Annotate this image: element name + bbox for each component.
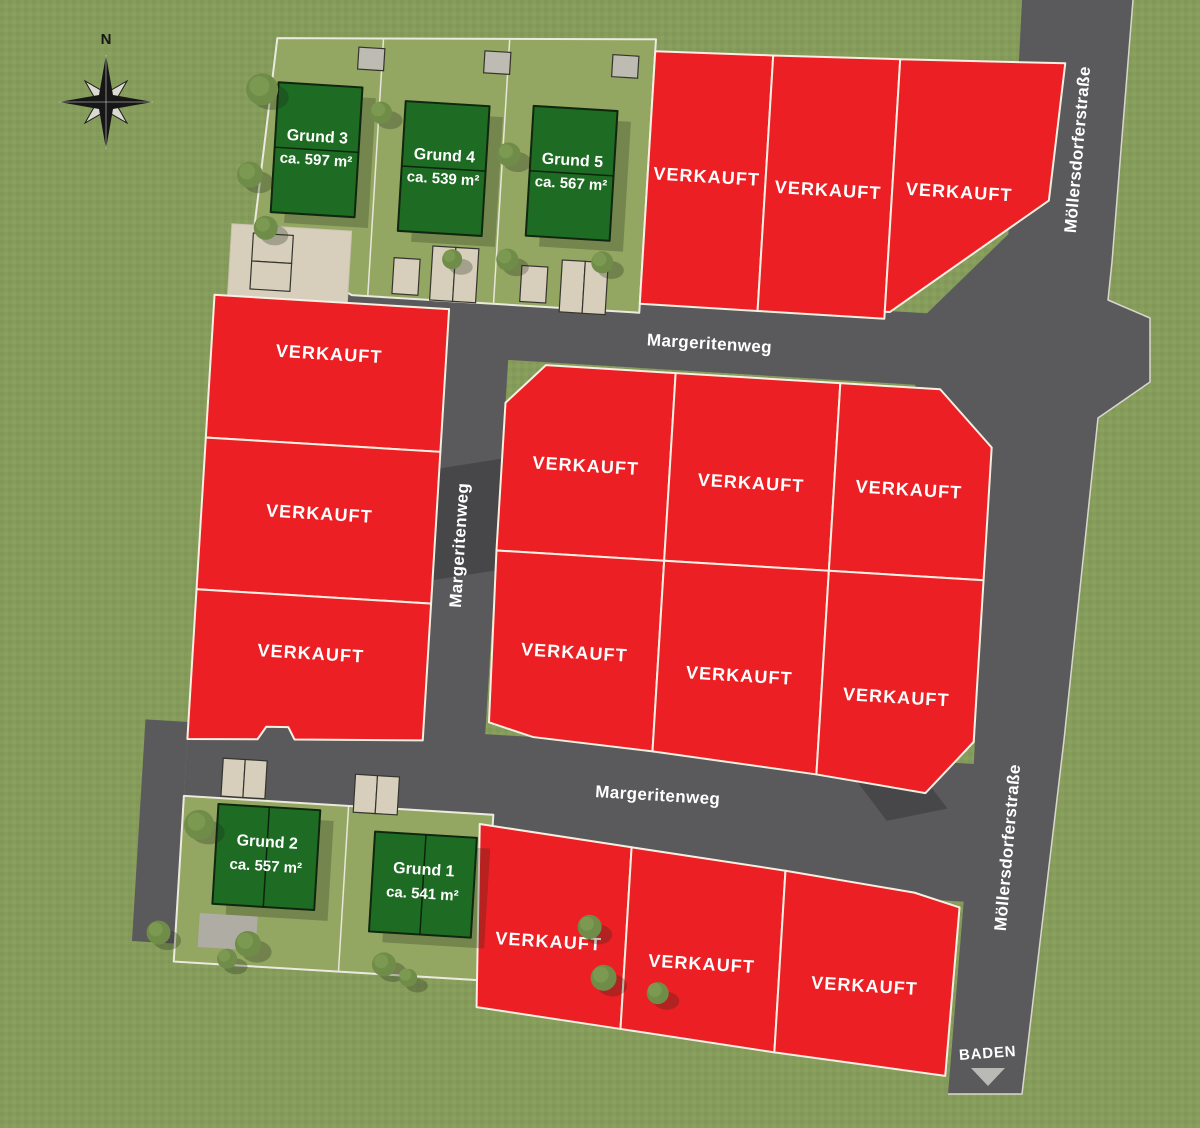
sold-plot-6: [187, 589, 431, 753]
parking-stall: [353, 774, 377, 813]
site-group: VERKAUFT VERKAUFT VERKAUFT VERKAUFT VERK…: [127, 10, 1105, 1082]
shed: [612, 55, 639, 79]
shed: [358, 47, 385, 71]
shed: [484, 51, 511, 75]
sold-plot-15: [774, 871, 962, 1076]
site-plan-map: VERKAUFT VERKAUFT VERKAUFT VERKAUFT VERK…: [0, 0, 1200, 1128]
sold-plot-13: [468, 824, 633, 1029]
compass-north-label: N: [101, 31, 112, 48]
sold-plot-14: [620, 847, 787, 1052]
parking-stall: [243, 760, 267, 799]
sold-plot-4: [206, 295, 449, 452]
parking-stall: [392, 258, 420, 296]
sold-plot-8: [664, 373, 840, 571]
site-plan-svg: VERKAUFT VERKAUFT VERKAUFT VERKAUFT VERK…: [0, 0, 1200, 1128]
parking-stall: [559, 260, 585, 313]
parking-stall: [250, 261, 292, 291]
parking-stall: [375, 776, 399, 815]
parking-stall: [221, 758, 245, 797]
